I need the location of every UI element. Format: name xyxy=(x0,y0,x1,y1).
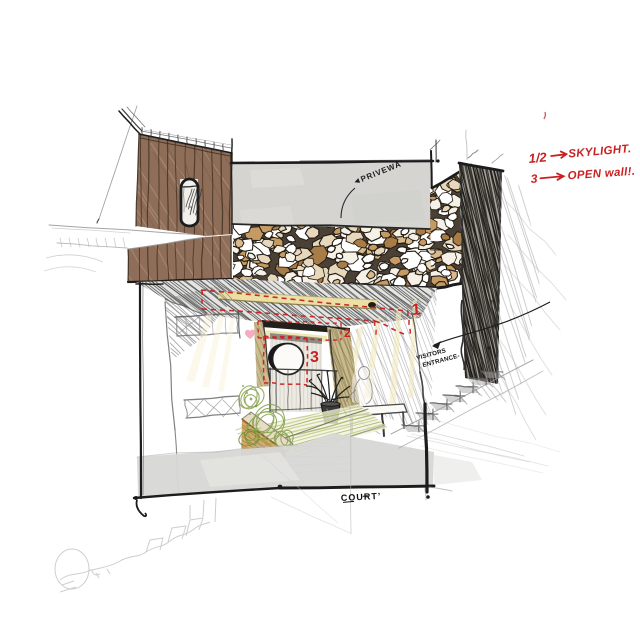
svg-text:3: 3 xyxy=(530,172,538,186)
svg-text:COURT’: COURT’ xyxy=(341,491,382,503)
svg-text:2: 2 xyxy=(344,326,351,340)
svg-text:3: 3 xyxy=(310,349,319,366)
svg-text:1/2: 1/2 xyxy=(528,149,548,166)
